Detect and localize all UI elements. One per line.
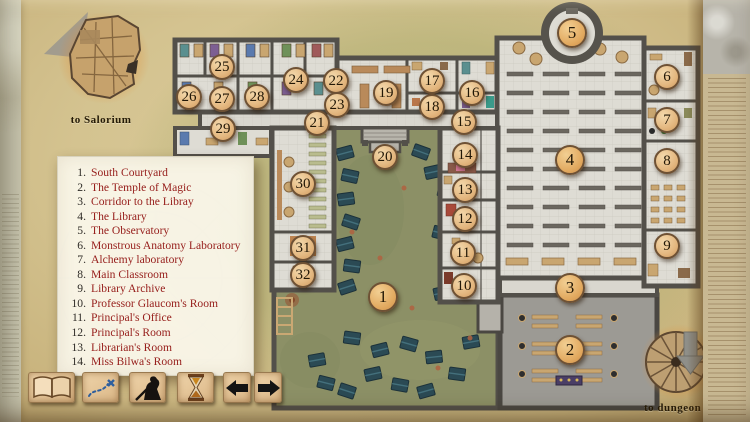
map-marker-15[interactable]: 15 (451, 109, 477, 135)
map-marker-27[interactable]: 27 (209, 86, 235, 112)
adventurer-button[interactable] (129, 372, 166, 403)
toolbar (28, 372, 282, 403)
map-marker-31[interactable]: 31 (290, 235, 316, 261)
right-page-edge-decoration (703, 0, 750, 422)
map-marker-7[interactable]: 7 (654, 107, 680, 133)
map-marker-13[interactable]: 13 (452, 177, 478, 203)
map-marker-30[interactable]: 30 (290, 171, 316, 197)
hourglass-icon (186, 374, 206, 401)
map-marker-28[interactable]: 28 (244, 84, 270, 110)
map-marker-14[interactable]: 14 (452, 142, 478, 168)
arrow-right-icon (257, 379, 280, 397)
map-marker-18[interactable]: 18 (419, 94, 445, 120)
map-marker-19[interactable]: 19 (373, 80, 399, 106)
map-marker-1[interactable]: 1 (368, 282, 398, 312)
map-viewer: 1.South Courtyard2.The Temple of Magic3.… (0, 0, 750, 422)
map-marker-5[interactable]: 5 (557, 18, 587, 48)
open-book-icon (32, 375, 72, 401)
map-marker-8[interactable]: 8 (654, 148, 680, 174)
map-marker-9[interactable]: 9 (654, 233, 680, 259)
map-marker-3[interactable]: 3 (555, 273, 585, 303)
map-marker-17[interactable]: 17 (419, 68, 445, 94)
adventurer-icon (133, 374, 163, 401)
map-marker-23[interactable]: 23 (324, 92, 350, 118)
map-marker-11[interactable]: 11 (450, 240, 476, 266)
next-button[interactable] (254, 372, 282, 403)
previous-button[interactable] (223, 372, 251, 403)
left-page-edge-decoration (0, 0, 21, 422)
map-button[interactable] (82, 372, 119, 403)
journal-button[interactable] (28, 372, 75, 403)
arrow-left-icon (226, 379, 249, 397)
treasure-map-icon (86, 376, 116, 400)
map-marker-26[interactable]: 26 (176, 84, 202, 110)
map-marker-12[interactable]: 12 (452, 206, 478, 232)
hourglass-button[interactable] (177, 372, 214, 403)
map-marker-22[interactable]: 22 (323, 68, 349, 94)
map-marker-2[interactable]: 2 (555, 335, 585, 365)
map-marker-16[interactable]: 16 (459, 80, 485, 106)
map-marker-4[interactable]: 4 (555, 145, 585, 175)
map-marker-29[interactable]: 29 (210, 116, 236, 142)
map-marker-10[interactable]: 10 (451, 273, 477, 299)
map-marker-32[interactable]: 32 (290, 262, 316, 288)
map-marker-24[interactable]: 24 (283, 67, 309, 93)
map-marker-6[interactable]: 6 (654, 64, 680, 90)
old-text-column (708, 78, 746, 418)
damask-ornament (703, 0, 750, 74)
map-marker-21[interactable]: 21 (304, 110, 330, 136)
map-marker-20[interactable]: 20 (372, 144, 398, 170)
map-marker-25[interactable]: 25 (209, 54, 235, 80)
